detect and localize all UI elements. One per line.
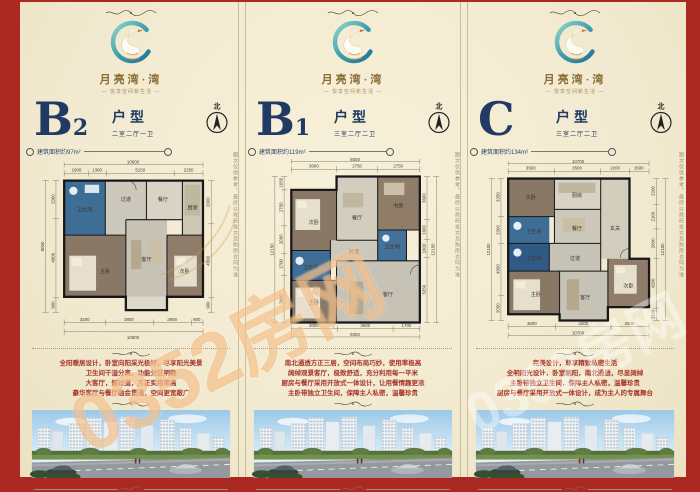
side-disclaimer: 图文仅供参考，最终以政府批文及购房合同为准 [454,152,461,278]
dim-label: 2090 [279,234,284,244]
type-label: 户型 [112,107,154,127]
ring-icon [248,148,256,156]
desc-line: 主卧带独立卫生间，保障主人私密，温馨珍贵 [250,389,456,399]
ring-icon [608,148,616,156]
pedestrian [139,459,141,464]
dim-label: 2750 [279,202,284,212]
pedestrian [135,459,137,464]
panel-c: 月亮湾·湾 — 悦享空间新生活 — C 户型 三室二厅二卫 北 建筑面积约134… [464,2,686,477]
room-label: 卫生间 [384,242,399,250]
fold-line [467,2,468,477]
dim-label: 5350 [421,284,426,294]
area-label: 建筑面积约119m² [259,147,306,156]
layout-label: 二室二厅一卫 [112,129,154,138]
dim-total: 8300 [350,332,360,337]
swan-moon-logo-icon [105,19,157,65]
north-label: 北 [658,102,665,111]
brochure-page: { "page": { "watermark_main": "0352房网", … [0,0,700,483]
dim-label: 1700 [279,258,284,268]
brand-logo: 月亮湾·湾 — 悦享空间新生活 — [464,19,686,95]
panel-b1: 月亮湾·湾 — 悦享空间新生活 — B1 户型 三室二厅二卫 北 建筑面积约11… [242,2,464,477]
dim-label: 2750 [393,163,403,168]
room-label: 卫生间 [526,254,541,262]
floorplan-c: 次卧 厨房 餐厅 玄关 卫生间 卫生间 过道 主卧 客厅 次卧 3500 350… [464,158,686,345]
dim-label: 4500 [495,264,500,274]
flourish-ornament [104,9,158,17]
ring-icon [164,148,172,156]
rendering-scene [472,410,678,478]
building-rendering [472,410,678,483]
room-label: 厨房 [572,191,582,199]
dim-label: 3500 [526,165,536,170]
dim-label: 1100 [651,309,656,319]
dim-total: 10600 [127,160,140,165]
desc-line: 完美设计，尊享精致私密生活 [472,359,678,369]
dim-total: 8500 [350,158,360,162]
dim-label: 3200 [80,317,90,322]
dim-label: 3250 [495,192,500,202]
brand-name: 月亮湾·湾 [242,71,464,87]
rendering-scene [28,410,234,478]
dotted-divider [476,348,674,349]
room-label: 次卧 [526,193,536,201]
dim-label: 2900 [625,321,635,326]
dim-label: 4200 [651,278,656,288]
dim-label: 1600 [421,243,426,253]
flourish-ornament [111,351,151,357]
room-label: 次卧 [309,218,319,226]
desc-line: 卫生间干湿分离，功能分区明确 [28,369,234,379]
room-label: 主卧 [100,267,110,275]
dim-label: 5150 [135,167,145,172]
dim-label: 3500 [572,165,582,170]
description-text: 全阳暖居设计，卧室向阳采光极好，尽享阳光美景 卫生间干湿分离，功能分区明确 大客… [28,359,234,399]
north-compass-icon: 北 [426,101,452,137]
dim-label: 1050 [279,177,284,187]
room-label: 过道 [349,248,359,256]
plan-letter: B [34,92,73,146]
dim-label: 900 [50,301,55,309]
room-label: 卫生间 [303,263,318,271]
ring-icon [470,148,478,156]
room-label: 客厅 [580,293,590,301]
plan-title-b1: B1 户型 三室二厅二卫 北 [256,99,454,143]
north-compass-icon: 北 [648,101,674,137]
flourish-ornament [333,401,373,407]
room-label: 卫生间 [526,227,541,235]
dim-label: 3600 [421,193,426,203]
dotted-divider [32,348,230,349]
watermark-swirl-icon [150,195,240,285]
desc-line: 厨房与餐厅采用开放式一体设计，让用餐情趣更浓 [250,379,456,389]
dim-label: 1700 [402,323,412,328]
room-label: 主卧 [531,290,541,298]
flourish-ornament [333,351,373,357]
dotted-divider [254,348,452,349]
north-label: 北 [214,102,221,111]
bottom-divider [256,486,450,492]
desc-line: 主卧带独立卫生间，保障主人私密，温馨珍贵 [472,379,678,389]
rendering-scene [250,410,456,478]
dim-label: 4800 [50,252,55,262]
area-row: 建筑面积约119m² [248,147,394,156]
room-label: 餐厅 [352,214,362,222]
dim-label: 900 [193,317,201,322]
dim-label: 2750 [352,163,362,168]
plan-letter-sub: 1 [295,115,310,141]
type-label: 户型 [334,107,376,127]
bottom-divider [34,486,228,492]
brand-name: 月亮湾·湾 [464,71,686,87]
dim-label: 2100 [651,211,656,221]
area-row: 建筑面积约97m² [26,147,172,156]
floorplan-b1: 次卧 书房 餐厅 卫生间 卫生间 主卧 客厅 过道 3000 2750 2750… [242,158,464,345]
side-disclaimer: 图文仅供参考，最终以政府批文及购房合同为准 [678,152,685,278]
brand-name: 月亮湾·湾 [20,71,242,87]
dim-label: 2300 [50,194,55,204]
flourish-ornament [555,351,595,357]
room-label: 过道 [121,195,131,203]
layout-label: 三室二厅二卫 [334,129,376,138]
area-line [84,151,164,152]
dim-label: 3600 [527,321,537,326]
dim-label: 4200 [578,321,588,326]
flourish-ornament [111,401,151,407]
desc-line: 阔绰观景客厅，极致舒适，充分利用每一平米 [250,369,456,379]
room-label: 主卧 [309,298,319,306]
dim-label: 2200 [610,165,620,170]
layout-label: 三室二厅二卫 [556,129,598,138]
dim-total: 12150 [269,243,274,256]
flourish-ornament [555,401,595,407]
plan-letter-sub: 2 [73,115,88,141]
dim-label: 1500 [634,165,644,170]
swan-moon-logo-icon [549,19,601,65]
area-line [531,151,608,152]
dim-total: 12150 [431,243,436,256]
brand-logo: 月亮湾·湾 — 悦享空间新生活 — [242,19,464,95]
room-label: 卫生间 [77,205,92,213]
plan-title-c: C 户型 三室二厅二卫 北 [478,99,676,143]
room-label: 客厅 [383,290,393,298]
flourish-ornament [562,486,588,492]
dim-total: 10700 [572,330,585,335]
dim-label: 3800 [124,317,134,322]
floorplan-b1-drawing: 次卧 书房 餐厅 卫生间 卫生间 主卧 客厅 过道 3000 2750 2750… [250,158,456,340]
dim-label: 2250 [184,167,194,172]
flourish-ornament [340,486,366,492]
dim-label: 3000 [309,163,319,168]
north-label: 北 [436,102,443,111]
plan-letter: B [256,92,295,146]
desc-line: 全阳暖居设计，卧室向阳采光极好，尽享阳光美景 [28,359,234,369]
desc-line: 大客厅，短过道，方正实用率高 [28,379,234,389]
dim-total: 8000 [40,241,45,251]
flourish-ornament [118,486,144,492]
desc-line: 厨房与餐厅采用开放式一体设计，成为主人的专属舞台 [472,389,678,399]
room-label: 餐厅 [572,224,582,232]
room-label: 过道 [570,254,580,262]
ring-icon [26,148,34,156]
dim-total: 10800 [127,335,140,340]
dim-label: 2600 [651,238,656,248]
area-row: 建筑面积约134m² [470,147,616,156]
description-text: 南北通透方正三居，空间布局巧妙，使用率极高 阔绰观景客厅，极致舒适，充分利用每一… [250,359,456,399]
dim-label: 3000 [309,323,319,328]
brand-logo: 月亮湾·湾 — 悦享空间新生活 — [20,19,242,95]
description-text: 完美设计，尊享精致私密生活 全明阳光设计，卧室朝阳，南北通透，尽显阔绰 主卧带独… [472,359,678,399]
type-label: 户型 [556,107,598,127]
dim-total: 10700 [572,159,585,164]
dim-label: 900 [206,301,211,309]
dim-label: 2200 [651,185,656,195]
fold-line [245,2,246,477]
building-rendering [250,410,456,483]
dim-total: 12100 [660,243,665,256]
dim-label: 2300 [495,225,500,235]
desc-line: 豪华客厅与餐厅融会贯通，空间更宽敞广 [28,389,234,399]
plan-letter: C [478,92,515,146]
dim-label: 2050 [495,303,500,313]
brochure-sheet: 月亮湾·湾 — 悦享空间新生活 — B2 户型 二室二厅一卫 北 建筑面积约97… [20,2,686,477]
room-label: 书房 [393,201,403,209]
dim-label: 3600 [360,323,370,328]
room-label: 次卧 [623,282,633,290]
flourish-ornament [326,9,380,17]
area-label: 建筑面积约97m² [37,147,81,156]
bottom-divider [478,486,672,492]
dim-total: 12100 [486,243,491,256]
dim-label: 1900 [72,167,82,172]
dim-label: 3600 [279,293,284,303]
flourish-ornament [548,9,602,17]
floorplan-c-drawing: 次卧 厨房 餐厅 玄关 卫生间 卫生间 过道 主卧 客厅 次卧 3500 350… [472,158,678,340]
plan-title-b2: B2 户型 二室二厅一卫 北 [34,99,232,143]
dim-label: 1600 [421,225,426,235]
ring-icon [386,148,394,156]
room-label: 玄关 [610,224,620,232]
area-line [309,151,386,152]
north-compass-icon: 北 [204,101,230,137]
dim-label: 2900 [167,317,177,322]
swan-moon-logo-icon [327,19,379,65]
dim-label: 1300 [92,167,102,172]
desc-line: 全明阳光设计，卧室朝阳，南北通透，尽显阔绰 [472,369,678,379]
desc-line: 南北通透方正三居，空间布局巧妙，使用率极高 [250,359,456,369]
area-label: 建筑面积约134m² [481,147,528,156]
building-rendering [28,410,234,483]
